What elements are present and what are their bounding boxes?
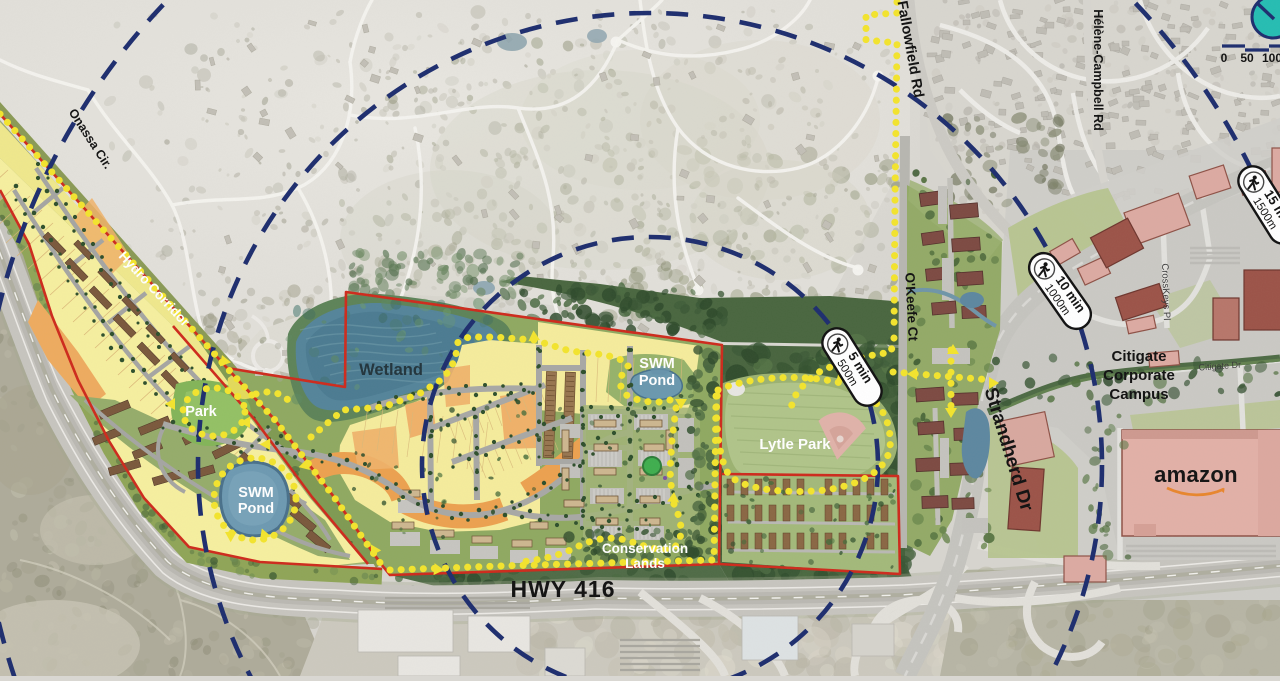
svg-text:Corporate: Corporate (1103, 367, 1175, 384)
svg-text:SWM: SWM (639, 356, 674, 372)
svg-text:CrossKeys Pl: CrossKeys Pl (1159, 263, 1172, 320)
svg-text:Citigate: Citigate (1111, 348, 1166, 365)
svg-text:Lytle Park: Lytle Park (759, 436, 831, 453)
svg-text:Lands: Lands (625, 556, 665, 571)
svg-text:Park: Park (185, 404, 217, 420)
svg-text:Pond: Pond (639, 373, 675, 389)
svg-text:SWM: SWM (238, 485, 273, 501)
svg-text:Pond: Pond (238, 501, 274, 517)
svg-text:Conservation: Conservation (602, 541, 688, 556)
svg-text:amazon: amazon (1154, 462, 1238, 487)
svg-text:Wetland: Wetland (359, 361, 423, 379)
svg-text:HWY 416: HWY 416 (510, 576, 615, 602)
svg-text:Campus: Campus (1109, 386, 1168, 403)
